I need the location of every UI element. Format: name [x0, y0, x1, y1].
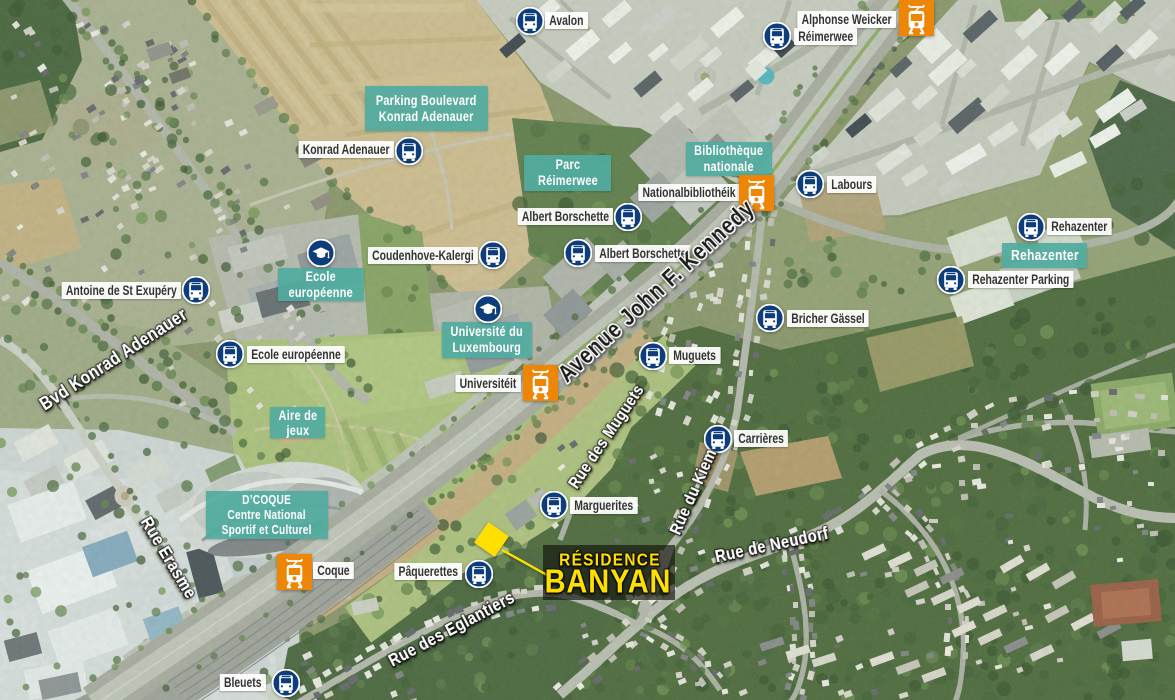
svg-text:Rue de Neudorf: Rue de Neudorf [713, 524, 830, 567]
svg-text:Bvd Konrad Adenauer: Bvd Konrad Adenauer [36, 304, 191, 415]
svg-text:Avenue John F. Kennedy: Avenue John F. Kennedy [552, 194, 759, 387]
svg-text:Rue des Eglantiers: Rue des Eglantiers [385, 588, 518, 671]
svg-text:Rue Erasme: Rue Erasme [137, 513, 202, 602]
svg-text:Rue du Kiem: Rue du Kiem [667, 446, 721, 537]
svg-text:BANYAN: BANYAN [545, 563, 672, 600]
svg-text:Rue des Muguets: Rue des Muguets [565, 381, 648, 492]
